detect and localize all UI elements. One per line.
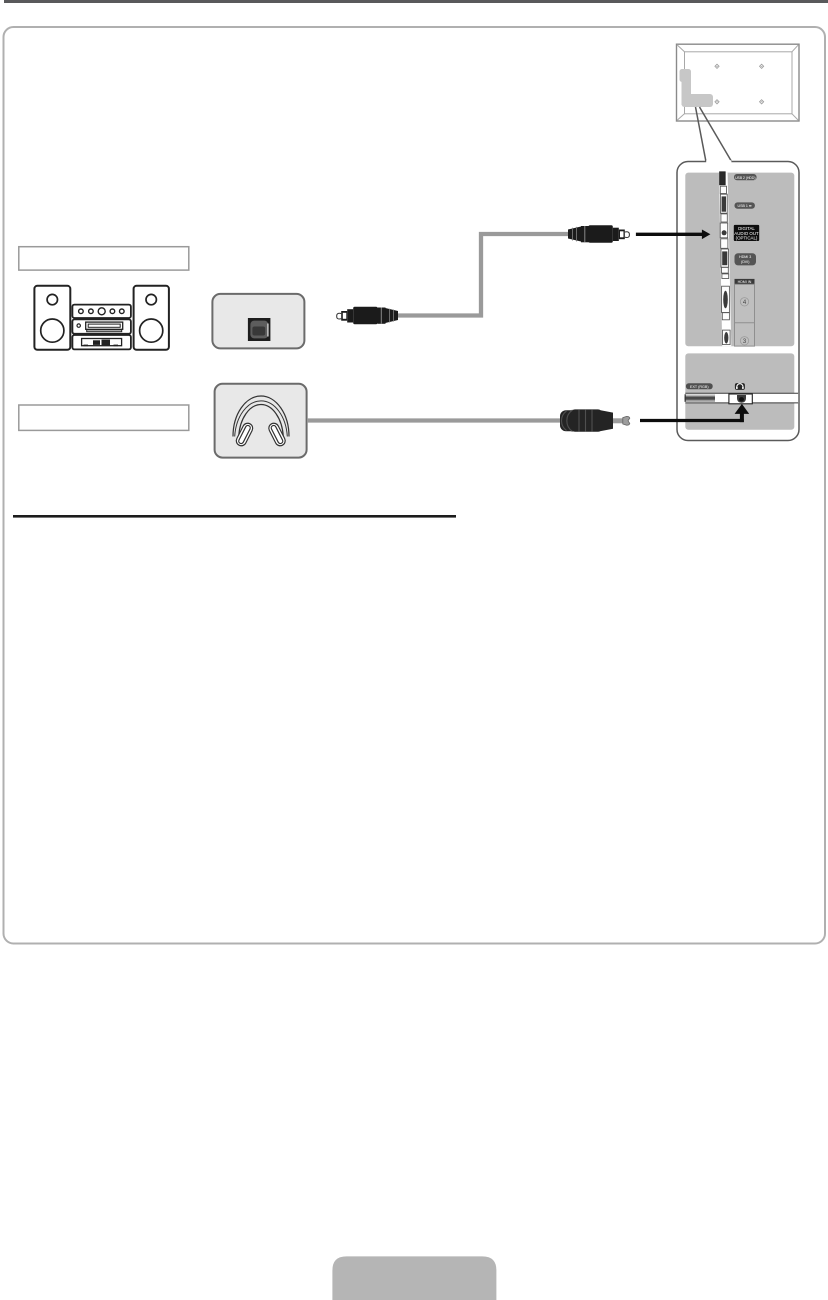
svg-text:EXT (RGB): EXT (RGB) (690, 385, 709, 389)
svg-text:USB 1 ⬌: USB 1 ⬌ (737, 204, 752, 208)
svg-text:(DVI): (DVI) (741, 260, 749, 264)
svg-text:(OPTICAL): (OPTICAL) (736, 236, 758, 241)
svg-text:HDMI 3: HDMI 3 (739, 255, 751, 259)
svg-text:HDMI IN: HDMI IN (738, 280, 752, 284)
svg-text:USB 2 (HDD): USB 2 (HDD) (735, 176, 755, 180)
